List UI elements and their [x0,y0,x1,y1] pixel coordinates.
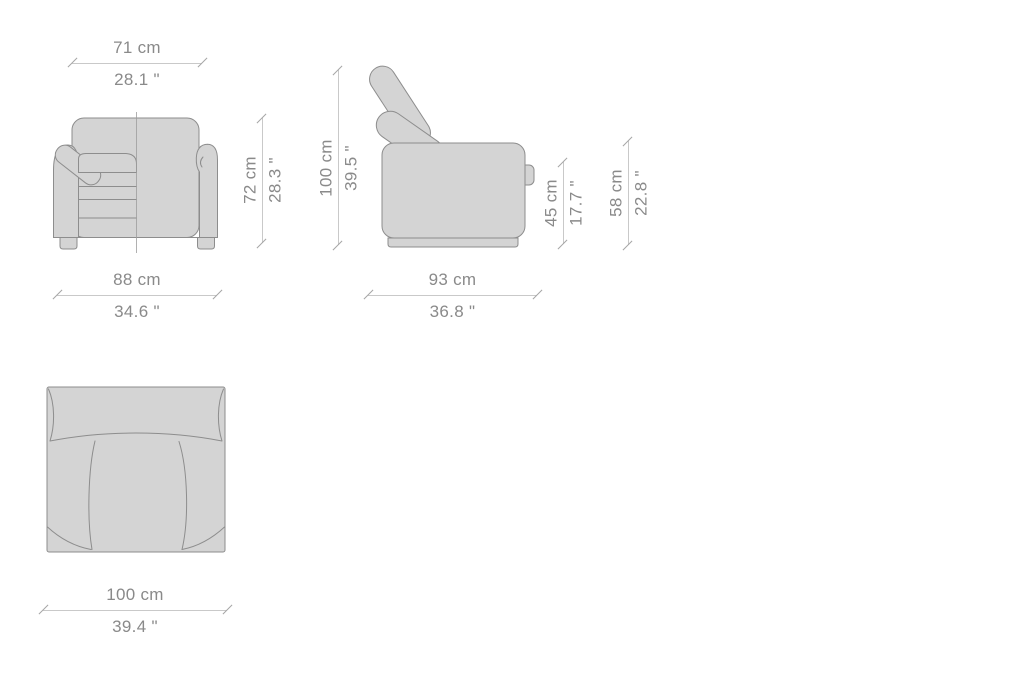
front-left-foot [60,238,77,250]
front-right-foot [198,238,215,250]
side-body [382,143,525,238]
dimension-line [628,141,629,245]
front-right-arm [196,144,217,237]
front-view-drawing [52,112,218,253]
dimension-value-inch: 39.4 " [3,618,267,637]
side-view-drawing [365,61,534,247]
armchair-drawings [0,0,1024,678]
dimension-value-cm: 93 cm [328,271,577,290]
dimension-value-cm: 71 cm [32,39,242,58]
dimension-value-inch: 22.8 " [633,170,650,216]
top-outline [47,387,225,552]
dimension-line [262,118,263,243]
dimension-line [57,295,217,296]
front-seat-cushion [79,154,137,173]
dimension-value-inch: 36.8 " [328,303,577,322]
dimension-value-cm: 58 cm [608,169,625,217]
dimension-value-inch: 17.7 " [568,180,585,226]
dimension-value-inch: 28.1 " [32,71,242,90]
dimension-line [72,63,202,64]
side-base [388,238,518,247]
dimension-value-inch: 34.6 " [17,303,257,322]
dimension-value-inch: 28.3 " [267,157,284,203]
dimension-line [368,295,537,296]
dimension-value-cm: 88 cm [17,271,257,290]
dimension-value-inch: 39.5 " [343,145,360,191]
dimension-line [43,610,227,611]
dimension-value-cm: 72 cm [242,156,259,204]
dimension-line [338,70,339,245]
top-view-drawing [47,387,225,552]
armchair-dimension-diagram: 71 cm 28.1 " 72 cm 28.3 " 88 cm 34.6 " 1… [0,0,1024,678]
dimension-value-cm: 100 cm [3,586,267,605]
dimension-line [563,162,564,244]
dimension-value-cm: 100 cm [318,139,335,197]
dimension-value-cm: 45 cm [543,179,560,227]
